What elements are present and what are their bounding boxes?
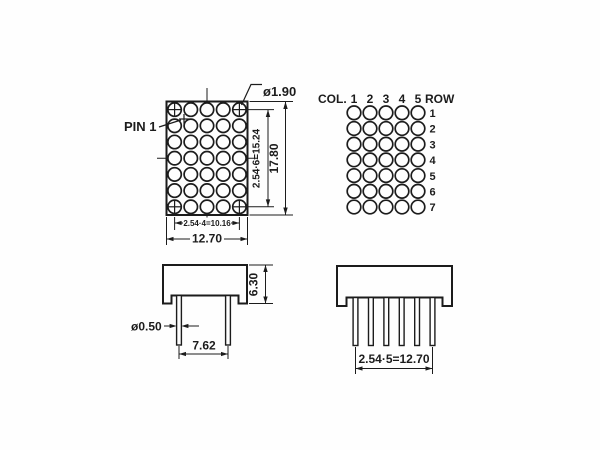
component-pin — [399, 298, 404, 346]
arrowhead — [283, 102, 287, 110]
arrowhead — [356, 366, 363, 370]
pinmap-dot — [395, 122, 409, 136]
pinmap-col-number: 2 — [367, 92, 374, 106]
side-view: 6.30 ø0.50 7.62 — [131, 265, 273, 359]
pinmap-dot — [379, 200, 393, 214]
overall-height-label: 17.80 — [267, 143, 281, 173]
component-pin — [369, 298, 374, 346]
dot-matrix-mechanical-drawing: PIN 1 ø1.90 2.54·6=15.24 17.80 — [0, 0, 600, 450]
arrowhead — [266, 199, 270, 206]
pinmap-row-number: 3 — [430, 139, 436, 151]
component-pin — [177, 296, 182, 346]
end-view: 2.54·5=12.70 — [337, 266, 452, 374]
component-pin — [430, 298, 435, 346]
dot-diameter-label: ø1.90 — [263, 84, 296, 99]
pinmap-dot — [379, 153, 393, 167]
row-label: ROW — [425, 92, 455, 106]
arrowhead — [283, 208, 287, 216]
pinmap-dot — [347, 169, 361, 183]
pinmap-dot — [363, 137, 377, 151]
pinmap-dot — [395, 153, 409, 167]
pinmap-col-number: 1 — [351, 92, 358, 106]
arrowhead — [232, 221, 239, 225]
pinmap-dot — [347, 122, 361, 136]
pinmap-row-number: 4 — [430, 155, 437, 167]
component-pin — [415, 298, 420, 346]
pinmap-dot — [411, 122, 425, 136]
pinmap-row-number: 1 — [430, 108, 436, 120]
dim-pin-spacing: 7.62 — [179, 339, 228, 360]
arrowhead — [179, 352, 186, 356]
pinmap-col-numbers: 12345 — [351, 92, 422, 106]
pin-spacing-label: 7.62 — [192, 339, 216, 353]
pinmap-dot — [347, 106, 361, 120]
component-pin — [384, 298, 389, 346]
arrowhead — [170, 324, 177, 328]
arrowhead — [175, 221, 182, 225]
pinmap-dot — [395, 185, 409, 199]
pinmap-dot — [411, 200, 425, 214]
pinmap-dot — [411, 185, 425, 199]
arrowhead — [167, 237, 174, 241]
pinmap-dot — [347, 185, 361, 199]
pinmap-dot — [347, 200, 361, 214]
body-height-label: 6.30 — [247, 272, 261, 296]
pin-pitch-label: 2.54·5=12.70 — [358, 352, 429, 366]
pinmap-col-number: 3 — [383, 92, 390, 106]
pinmap-dot — [379, 106, 393, 120]
pinmap-dot — [395, 200, 409, 214]
pin-map: COL. ROW 12345 1234567 — [318, 92, 455, 214]
arrowhead — [241, 237, 248, 241]
component-pin — [353, 298, 358, 346]
arrowhead — [266, 110, 270, 117]
pinmap-dot — [363, 200, 377, 214]
pinmap-dot — [363, 169, 377, 183]
pinmap-dot — [395, 106, 409, 120]
pinmap-dot — [347, 153, 361, 167]
pinmap-row-number: 2 — [430, 124, 436, 136]
face-view: PIN 1 ø1.90 2.54·6=15.24 17.80 — [124, 84, 296, 246]
pinmap-row-numbers: 1234567 — [430, 108, 437, 214]
pin-diameter-label: ø0.50 — [131, 320, 162, 334]
pinmap-dot — [411, 169, 425, 183]
arrowhead — [426, 366, 433, 370]
dim-col-pitch: 2.54·4=10.16 — [175, 217, 240, 230]
pinmap-dot — [411, 153, 425, 167]
row-pitch-label: 2.54·6=15.24 — [252, 128, 263, 188]
arrowhead — [221, 352, 228, 356]
dim-pin-diameter: ø0.50 — [131, 320, 199, 334]
pinmap-dot — [411, 106, 425, 120]
pin1-label: PIN 1 — [124, 119, 157, 134]
pinmap-dot — [363, 122, 377, 136]
pinmap-col-number: 4 — [399, 92, 406, 106]
pinmap-dot — [379, 185, 393, 199]
pinmap-dot — [395, 137, 409, 151]
pinmap-dot — [363, 153, 377, 167]
pinmap-dot — [347, 137, 361, 151]
pinmap-col-number: 5 — [415, 92, 422, 106]
arrowhead — [181, 324, 188, 328]
arrowhead — [263, 265, 267, 272]
dim-body-height: 6.30 — [247, 265, 274, 304]
overall-width-label: 12.70 — [192, 232, 222, 246]
pinmap-row-number: 5 — [430, 171, 436, 183]
pinmap-dot — [379, 122, 393, 136]
dim-pin-pitch: 2.54·5=12.70 — [356, 347, 433, 374]
pinmap-dot — [379, 137, 393, 151]
col-pitch-label: 2.54·4=10.16 — [183, 219, 231, 228]
pinmap-dot — [379, 169, 393, 183]
pinmap-dot — [363, 106, 377, 120]
pinmap-row-number: 6 — [430, 187, 436, 199]
end-pins — [353, 298, 435, 346]
pinmap-dot — [363, 185, 377, 199]
component-pin — [226, 296, 231, 346]
pinmap-dot — [395, 169, 409, 183]
col-label: COL. — [318, 92, 347, 106]
pinmap-dot-grid — [347, 106, 425, 214]
pinmap-dot — [411, 137, 425, 151]
datasheet-page: PIN 1 ø1.90 2.54·6=15.24 17.80 — [0, 0, 600, 450]
pinmap-row-number: 7 — [430, 202, 436, 214]
arrowhead — [263, 297, 267, 304]
side-body-outline — [163, 265, 247, 304]
